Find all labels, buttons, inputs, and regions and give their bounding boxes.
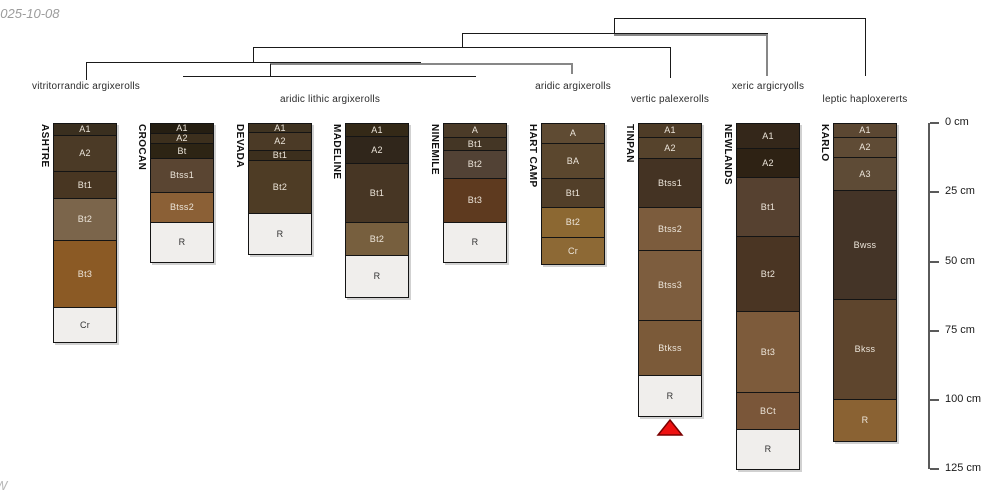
horizon-label: Bwss [854,241,877,250]
horizon-label: A [570,129,576,138]
horizon-label: Btss1 [170,171,194,180]
dendrogram-segment [614,18,615,33]
horizon-madeline-r: R [345,255,409,298]
horizon-hart-camp-a: A [541,123,605,143]
horizon-ashtre-cr: Cr [53,307,117,343]
depth-axis-tick [930,330,939,332]
horizon-hart-camp-bt1: Bt1 [541,178,605,207]
date-stamp: 2025-10-08 [0,6,60,21]
horizon-crocan-btss1: Btss1 [150,158,214,192]
depth-axis-tick-label: 125 cm [945,462,981,474]
horizon-ashtre-a1: A1 [53,123,117,135]
horizon-ninemile-r: R [443,222,507,263]
horizon-label: A2 [176,134,188,143]
horizon-devada-bt1: Bt1 [248,150,312,160]
horizon-newlands-bt3: Bt3 [736,311,800,392]
horizon-label: Cr [568,247,578,256]
profile-devada: A1A2Bt1Bt2R [248,123,312,255]
horizon-label: Cr [80,321,90,330]
dendrogram-segment [86,62,87,80]
profile-ninemile: ABt1Bt2Bt3R [443,123,507,263]
horizon-ninemile-bt1: Bt1 [443,137,507,150]
horizon-label: R [374,272,381,281]
horizon-karlo-a1: A1 [833,123,897,137]
horizon-madeline-a2: A2 [345,136,409,163]
horizon-tinpan-btss1: Btss1 [638,158,702,207]
horizon-label: Bt2 [273,183,287,192]
horizon-label: Bt2 [370,235,384,244]
dendrogram-segment [270,64,271,76]
horizon-label: A1 [859,126,871,135]
horizon-karlo-a3: A3 [833,157,897,190]
horizon-newlands-a1: A1 [736,123,800,148]
horizon-label: Bt3 [468,196,482,205]
horizon-label: Bt [177,147,186,156]
horizon-karlo-bkss: Bkss [833,299,897,399]
depth-axis-tick-label: 0 cm [945,116,969,128]
profile-madeline: A1A2Bt1Bt2R [345,123,409,298]
subgroup-label-leptic-haploxererts: leptic haploxererts [823,94,908,105]
profile-karlo: A1A2A3BwssBkssR [833,123,897,442]
horizon-label: Btss2 [170,203,194,212]
profile-name-ashtre: ASHTRE [39,124,50,168]
profile-name-ninemile: NINEMILE [429,124,440,175]
subgroup-label-vertic-palexerolls: vertic palexerolls [631,94,709,105]
horizon-hart-camp-cr: Cr [541,237,605,265]
horizon-tinpan-btkss: Btkss [638,320,702,375]
horizon-newlands-bct: BCt [736,392,800,429]
profile-ashtre: A1A2Bt1Bt2Bt3Cr [53,123,117,343]
horizon-label: R [179,238,186,247]
horizon-label: A2 [762,159,774,168]
horizon-crocan-a2: A2 [150,133,214,143]
depth-axis-tick [930,122,939,124]
horizon-label: R [277,230,284,239]
horizon-devada-r: R [248,213,312,255]
dendrogram-segment [614,34,768,36]
horizon-newlands-bt2: Bt2 [736,236,800,311]
horizon-newlands-bt1: Bt1 [736,177,800,236]
horizon-madeline-bt1: Bt1 [345,163,409,222]
horizon-label: BA [567,157,580,166]
horizon-label: Btkss [658,344,682,353]
horizon-karlo-a2: A2 [833,137,897,157]
horizon-label: BCt [760,407,776,416]
subgroup-label-aridic-argixerolls: aridic argixerolls [535,81,611,92]
profile-tinpan: A1A2Btss1Btss2Btss3BtkssR [638,123,702,417]
horizon-tinpan-r: R [638,375,702,417]
horizon-label: Bt1 [761,203,775,212]
dendrogram-segment [865,18,866,76]
horizon-crocan-a1: A1 [150,123,214,133]
horizon-label: A1 [664,126,676,135]
dendrogram-segment [253,47,254,62]
horizon-label: R [667,392,674,401]
horizon-label: A2 [274,137,286,146]
horizon-label: A2 [371,146,383,155]
horizon-label: Bt2 [468,160,482,169]
horizon-label: Bt3 [78,270,92,279]
dendrogram-segment [614,18,866,19]
horizon-ninemile-a: A [443,123,507,137]
horizon-label: A1 [79,125,91,134]
horizon-karlo-bwss: Bwss [833,190,897,299]
profile-name-tinpan: TINPAN [624,124,635,163]
horizon-label: Bt1 [468,140,482,149]
horizon-ashtre-a2: A2 [53,135,117,171]
horizon-label: Bt2 [78,215,92,224]
horizon-label: R [765,445,772,454]
depth-axis-tick-label: 75 cm [945,324,975,336]
horizon-label: Btss3 [658,281,682,290]
horizon-ashtre-bt1: Bt1 [53,171,117,198]
dendrogram-segment [670,47,671,78]
horizon-crocan-bt: Bt [150,143,214,158]
depth-axis-tick-label: 25 cm [945,185,975,197]
horizon-label: A2 [79,149,91,158]
horizon-label: A1 [176,124,188,133]
horizon-tinpan-a2: A2 [638,137,702,158]
figure-canvas: 2025-10-08 vitritorrandic argixerollsari… [0,0,1000,500]
depth-axis-tick [930,468,939,470]
horizon-label: Bt1 [566,189,580,198]
horizon-label: A2 [859,143,871,152]
horizon-madeline-bt2: Bt2 [345,222,409,255]
horizon-label: A [472,126,478,135]
subgroup-label-vitritorrandic-argixerolls: vitritorrandic argixerolls [32,81,140,92]
horizon-label: Bt2 [761,270,775,279]
horizon-ninemile-bt3: Bt3 [443,178,507,222]
dendrogram-segment [183,76,476,77]
horizon-label: A3 [859,170,871,179]
horizon-label: Bt1 [370,189,384,198]
dendrogram-segment [766,34,768,76]
profile-name-devada: DEVADA [234,124,245,168]
subgroup-label-xeric-argicryolls: xeric argicryolls [732,81,804,92]
horizon-newlands-r: R [736,429,800,470]
depth-axis-tick [930,191,939,193]
horizon-label: A2 [664,144,676,153]
horizon-crocan-r: R [150,222,214,263]
profile-name-hart-camp: HART CAMP [527,124,538,188]
depth-axis-tick [930,261,939,263]
horizon-tinpan-btss2: Btss2 [638,207,702,250]
dendrogram-segment [462,33,463,47]
horizon-label: Btss2 [658,225,682,234]
watermark-glyph: W [0,478,7,493]
horizon-label: Bt1 [78,181,92,190]
horizon-tinpan-a1: A1 [638,123,702,137]
red-triangle-marker [656,419,684,442]
profile-hart-camp: ABABt1Bt2Cr [541,123,605,265]
horizon-label: A1 [762,132,774,141]
dendrogram-segment [253,47,671,48]
depth-axis-tick-label: 100 cm [945,393,981,405]
red-triangle-icon [656,419,684,437]
horizon-label: A1 [371,126,383,135]
horizon-ashtre-bt2: Bt2 [53,198,117,240]
horizon-ninemile-bt2: Bt2 [443,150,507,178]
horizon-devada-a1: A1 [248,123,312,132]
horizon-devada-a2: A2 [248,132,312,150]
horizon-label: Bt1 [273,151,287,160]
horizon-label: Bt3 [761,348,775,357]
horizon-label: R [472,238,479,247]
depth-axis-line [928,123,930,469]
horizon-hart-camp-bt2: Bt2 [541,207,605,237]
horizon-crocan-btss2: Btss2 [150,192,214,222]
profile-name-madeline: MADELINE [331,124,342,179]
horizon-karlo-r: R [833,399,897,442]
horizon-newlands-a2: A2 [736,148,800,177]
subgroup-label-aridic-lithic-argixerolls: aridic lithic argixerolls [280,94,380,105]
profile-name-newlands: NEWLANDS [722,124,733,185]
profile-name-karlo: KARLO [819,124,830,162]
profile-crocan: A1A2BtBtss1Btss2R [150,123,214,263]
dendrogram-segment [571,64,573,74]
horizon-ashtre-bt3: Bt3 [53,240,117,307]
horizon-label: Bkss [855,345,876,354]
horizon-madeline-a1: A1 [345,123,409,136]
horizon-devada-bt2: Bt2 [248,160,312,213]
horizon-tinpan-btss3: Btss3 [638,250,702,320]
horizon-label: Btss1 [658,179,682,188]
horizon-label: R [862,416,869,425]
dendrogram-segment [270,63,573,65]
profile-name-crocan: CROCAN [136,124,147,170]
depth-axis-tick-label: 50 cm [945,255,975,267]
depth-axis-tick [930,399,939,401]
horizon-hart-camp-ba: BA [541,143,605,178]
horizon-label: Bt2 [566,218,580,227]
profile-newlands: A1A2Bt1Bt2Bt3BCtR [736,123,800,470]
